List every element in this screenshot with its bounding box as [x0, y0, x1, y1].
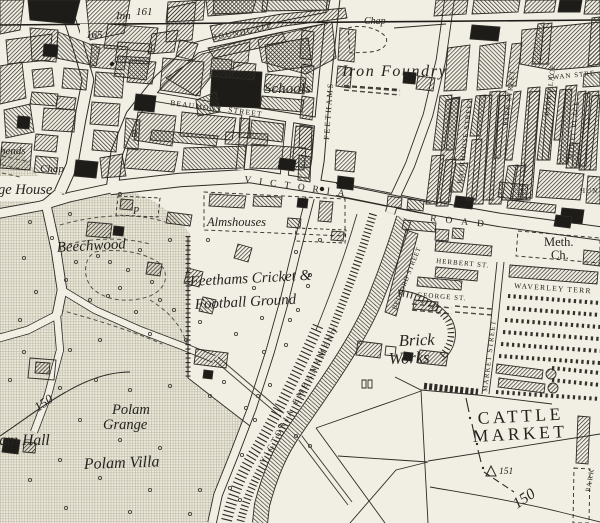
svg-text:Brick: Brick [398, 330, 435, 350]
svg-text:Polam: Polam [111, 402, 150, 418]
svg-text:Almshouses: Almshouses [206, 215, 266, 229]
svg-text:Works: Works [388, 348, 429, 368]
svg-text:B: B [131, 129, 137, 140]
svg-text:HUN: HUN [580, 187, 598, 195]
svg-text:Inn: Inn [115, 10, 131, 22]
svg-text:Meth.: Meth. [544, 235, 574, 249]
svg-text:Iron Foundry: Iron Foundry [341, 63, 447, 80]
svg-text:Polam Villa: Polam Villa [83, 453, 160, 473]
svg-text:lam Hall: lam Hall [0, 432, 50, 449]
svg-text:165: 165 [86, 29, 103, 41]
svg-text:Grange: Grange [103, 417, 148, 433]
svg-text:P: P [132, 206, 139, 217]
svg-text:Ch.: Ch. [551, 248, 569, 262]
svg-text:151: 151 [499, 467, 513, 477]
svg-text:ge House: ge House [0, 182, 53, 198]
svg-text:161: 161 [136, 6, 153, 18]
svg-text:Schools: Schools [264, 81, 311, 97]
svg-text:Chap: Chap [364, 16, 386, 27]
svg-text:Chap: Chap [40, 163, 64, 175]
svg-text:hends: hends [0, 145, 26, 157]
